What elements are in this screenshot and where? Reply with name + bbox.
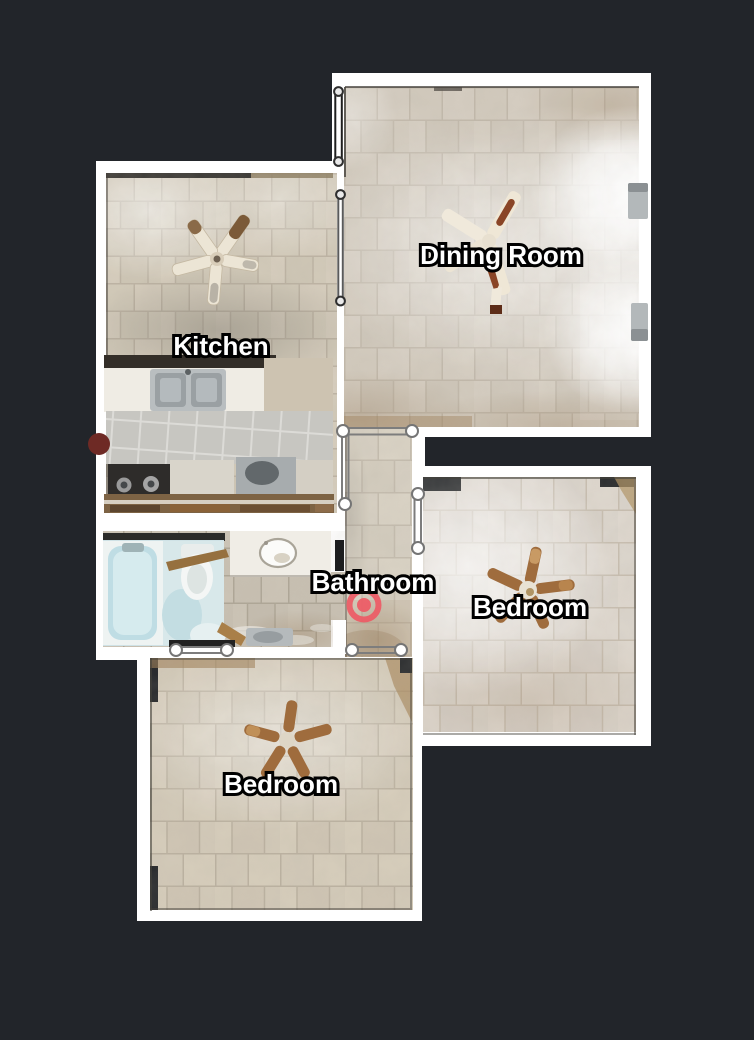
svg-text:Kitchen: Kitchen xyxy=(173,331,268,361)
svg-text:Bedroom: Bedroom xyxy=(473,592,587,622)
svg-text:Bedroom: Bedroom xyxy=(224,769,338,799)
svg-text:Bathroom: Bathroom xyxy=(312,567,435,597)
svg-text:Dining Room: Dining Room xyxy=(420,240,582,270)
